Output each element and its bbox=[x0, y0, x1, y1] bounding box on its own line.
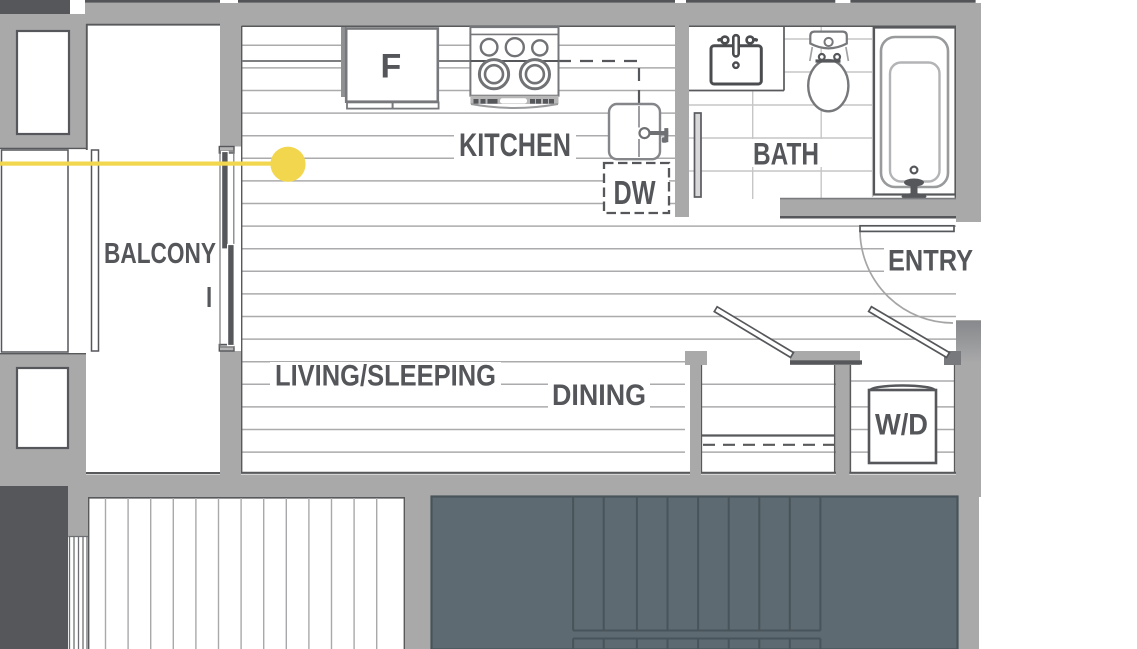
svg-text:DW: DW bbox=[614, 174, 657, 211]
svg-text:ENTRY: ENTRY bbox=[888, 245, 973, 278]
svg-text:F: F bbox=[381, 48, 402, 86]
svg-text:BATH: BATH bbox=[753, 136, 819, 172]
svg-text:KITCHEN: KITCHEN bbox=[459, 127, 571, 163]
svg-text:LIVING/SLEEPING: LIVING/SLEEPING bbox=[275, 360, 496, 393]
svg-text:BALCONY: BALCONY bbox=[104, 238, 216, 270]
svg-text:W/D: W/D bbox=[875, 409, 928, 442]
svg-text:DINING: DINING bbox=[552, 379, 646, 412]
